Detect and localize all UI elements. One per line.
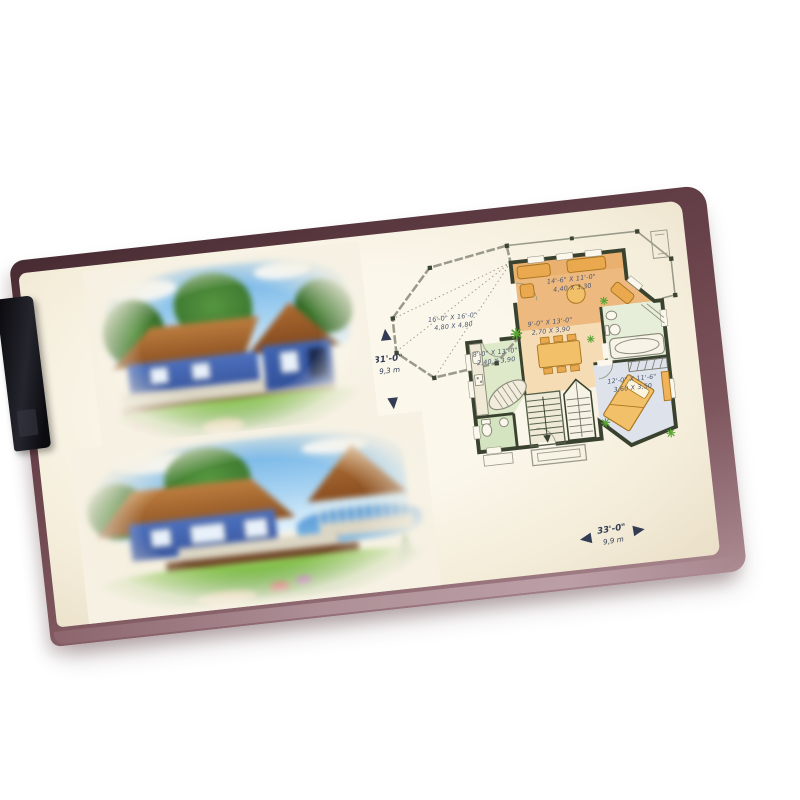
dimension-width: 33'-0" 9,9 m: [578, 519, 646, 550]
dimension-width-m: 9,9 m: [602, 534, 624, 546]
dimension-depth-m: 9,3 m: [379, 365, 401, 376]
dimension-depth: 31'-0" 9,3 m: [371, 327, 409, 411]
product-photo: 16'-0" X 16'-0" 4,80 X 4,80 14'-6" X 11'…: [0, 0, 800, 800]
arrow-down-icon: [387, 397, 399, 410]
window: [486, 447, 501, 455]
room-smallbath-floor: [475, 414, 517, 453]
dining-furniture: [536, 334, 582, 375]
arrow-left-icon: [579, 533, 592, 545]
arrow-up-icon: [380, 328, 392, 341]
floor-plan: 16'-0" X 16'-0" 4,80 X 4,80 14'-6" X 11'…: [362, 201, 717, 590]
arrow-right-icon: [632, 524, 645, 536]
clipboard-folder: 16'-0" X 16'-0" 4,80 X 4,80 14'-6" X 11'…: [9, 185, 747, 647]
window: [473, 426, 481, 439]
plan-sheet: 16'-0" X 16'-0" 4,80 X 4,80 14'-6" X 11'…: [18, 200, 720, 627]
house-rendering-top: [91, 247, 370, 447]
house-rendering-bottom: [80, 417, 430, 619]
